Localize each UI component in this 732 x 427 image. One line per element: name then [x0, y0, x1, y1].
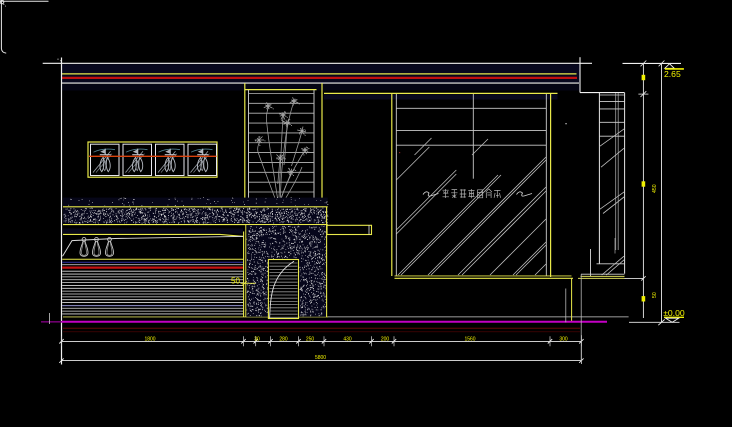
svg-text:±0.00: ±0.00 [663, 308, 685, 318]
svg-text:300: 300 [559, 337, 568, 343]
svg-text:1800: 1800 [144, 337, 155, 343]
svg-text:5800: 5800 [315, 355, 326, 361]
svg-text:30: 30 [254, 337, 260, 343]
svg-text:200: 200 [381, 337, 390, 343]
svg-text:280: 280 [279, 337, 288, 343]
svg-text:50: 50 [652, 292, 658, 298]
svg-text:50: 50 [231, 277, 240, 286]
svg-text:450: 450 [652, 184, 658, 193]
svg-text:430: 430 [343, 337, 352, 343]
svg-text:250: 250 [306, 337, 315, 343]
svg-text:1560: 1560 [464, 337, 475, 343]
svg-text:2.65: 2.65 [664, 69, 681, 79]
